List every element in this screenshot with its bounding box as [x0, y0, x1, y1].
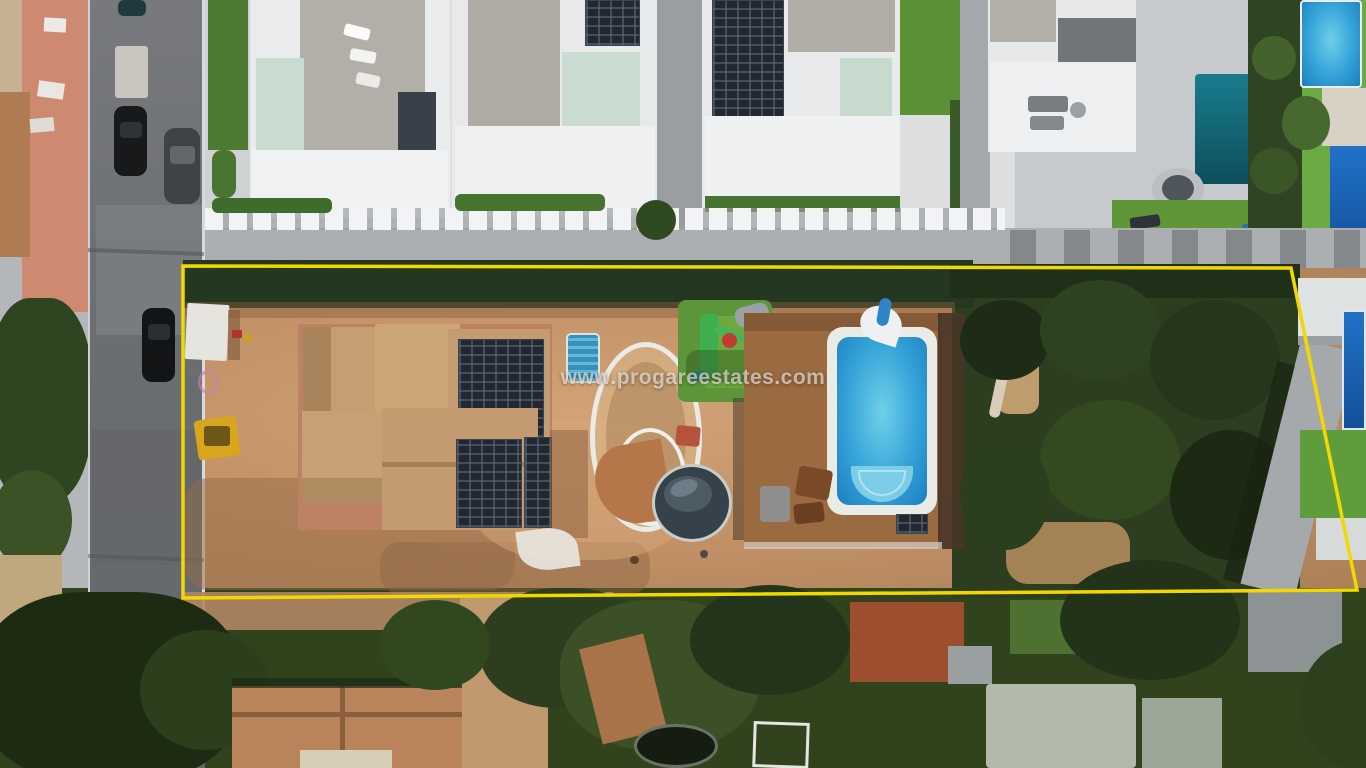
- shrub-strip-1: [212, 198, 332, 213]
- sidewalk-palm: [636, 200, 676, 240]
- car-gray-glass: [170, 146, 195, 164]
- watermark-text: www.progareestates.com: [548, 366, 838, 390]
- neighbor-pool-ne-1: [1300, 0, 1362, 88]
- villa-a-glass-terrace: [256, 58, 304, 156]
- red-picnic-table: [675, 425, 701, 447]
- spa-center: [1162, 175, 1194, 202]
- parked-car-gray: [164, 128, 200, 204]
- old-tile-roof-left: [0, 92, 30, 257]
- shrub-strip-2: [455, 194, 605, 211]
- neighbor-palm-ne: [1282, 96, 1330, 150]
- bottom-house-ridge-h: [232, 712, 462, 717]
- road-curb-left: [88, 0, 90, 620]
- toy-yellow: [244, 334, 253, 342]
- villa-b-gravel-roof: [468, 0, 560, 126]
- salmon-wall-pavement: [22, 0, 88, 312]
- woods-tree-4: [1040, 400, 1180, 520]
- villa-d-gravel-roof: [990, 0, 1056, 42]
- villa-c-glass-terrace: [840, 58, 892, 116]
- villa-b-solar: [585, 0, 640, 46]
- dirt-dot-1: [630, 556, 639, 564]
- teal-pool: [1195, 74, 1251, 184]
- villa-d-pergola: [1058, 18, 1136, 66]
- driveway-c-d: [960, 0, 990, 230]
- villa-a-stairwell: [398, 92, 436, 150]
- dark-pond: [634, 724, 718, 768]
- roof-lower-left-shade: [302, 478, 384, 504]
- bottom-tree-3: [1060, 560, 1240, 680]
- car-black-2-glass: [148, 324, 170, 340]
- parked-car-black-2: [142, 308, 175, 382]
- woods-tree-3: [1150, 300, 1280, 420]
- digger-cab: [204, 426, 230, 446]
- dirt-dot-2: [700, 550, 708, 558]
- neighbor-terrace-east: [1316, 518, 1366, 560]
- solar-array-3: [524, 437, 552, 528]
- palm-blob-2: [1250, 148, 1298, 194]
- villa-c-gravel-roof: [788, 0, 895, 52]
- villa-d-sofa-2: [1030, 116, 1064, 130]
- alley-between-villas: [657, 0, 702, 230]
- aerial-photo: www.progareestates.com: [0, 0, 1366, 768]
- rusty-shed-roof: [850, 602, 964, 682]
- toy-red: [232, 330, 242, 338]
- solar-array-2: [456, 439, 522, 528]
- bottom-tree-2: [690, 585, 850, 695]
- parked-car-black-1: [114, 106, 147, 176]
- planter-a: [212, 150, 236, 198]
- play-red-wheel: [722, 333, 737, 348]
- ac-unit-1: [37, 80, 65, 99]
- neighbor-pool-east: [1342, 310, 1366, 430]
- stone-trailer: [115, 46, 148, 98]
- woods-tree-1: [960, 300, 1050, 380]
- white-shed: [185, 303, 230, 361]
- parked-car-teal: [118, 0, 146, 16]
- lawn-c-ne: [900, 0, 960, 115]
- pink-hose-ring: [198, 370, 218, 394]
- villa-c-solar: [712, 0, 784, 128]
- palm-blob-1: [1252, 36, 1296, 80]
- car-black-1-glass: [120, 122, 142, 138]
- woods-tree-2: [1040, 280, 1160, 380]
- greenhouse-1: [986, 684, 1136, 768]
- turf-strip-a: [208, 0, 248, 150]
- deck-gray-furniture: [760, 486, 790, 522]
- villa-d-sofa-1: [1028, 96, 1068, 112]
- bottom-tree-5: [380, 600, 490, 690]
- deck-dark-mat: [896, 514, 928, 534]
- deck-lounger-brown-2: [793, 501, 825, 524]
- ac-unit-2: [29, 117, 54, 133]
- hedge-top-band: [183, 260, 973, 308]
- neighbor-lawn-east: [1300, 430, 1366, 518]
- woods-tree-6: [960, 440, 1050, 550]
- roof-upper-left-shade: [303, 327, 331, 413]
- sidewalk-slabs-right: [1010, 230, 1366, 268]
- house-shadow-east: [550, 430, 588, 538]
- deck-lounger-brown-1: [795, 465, 834, 500]
- villa-d-table: [1070, 102, 1086, 118]
- deck-south-edge: [744, 542, 942, 549]
- greenhouse-2: [1142, 698, 1222, 768]
- rusty-shed-annex: [948, 646, 992, 684]
- white-frame-structure: [752, 721, 810, 768]
- ac-unit-3: [44, 17, 67, 32]
- bottom-house-wall: [300, 750, 392, 768]
